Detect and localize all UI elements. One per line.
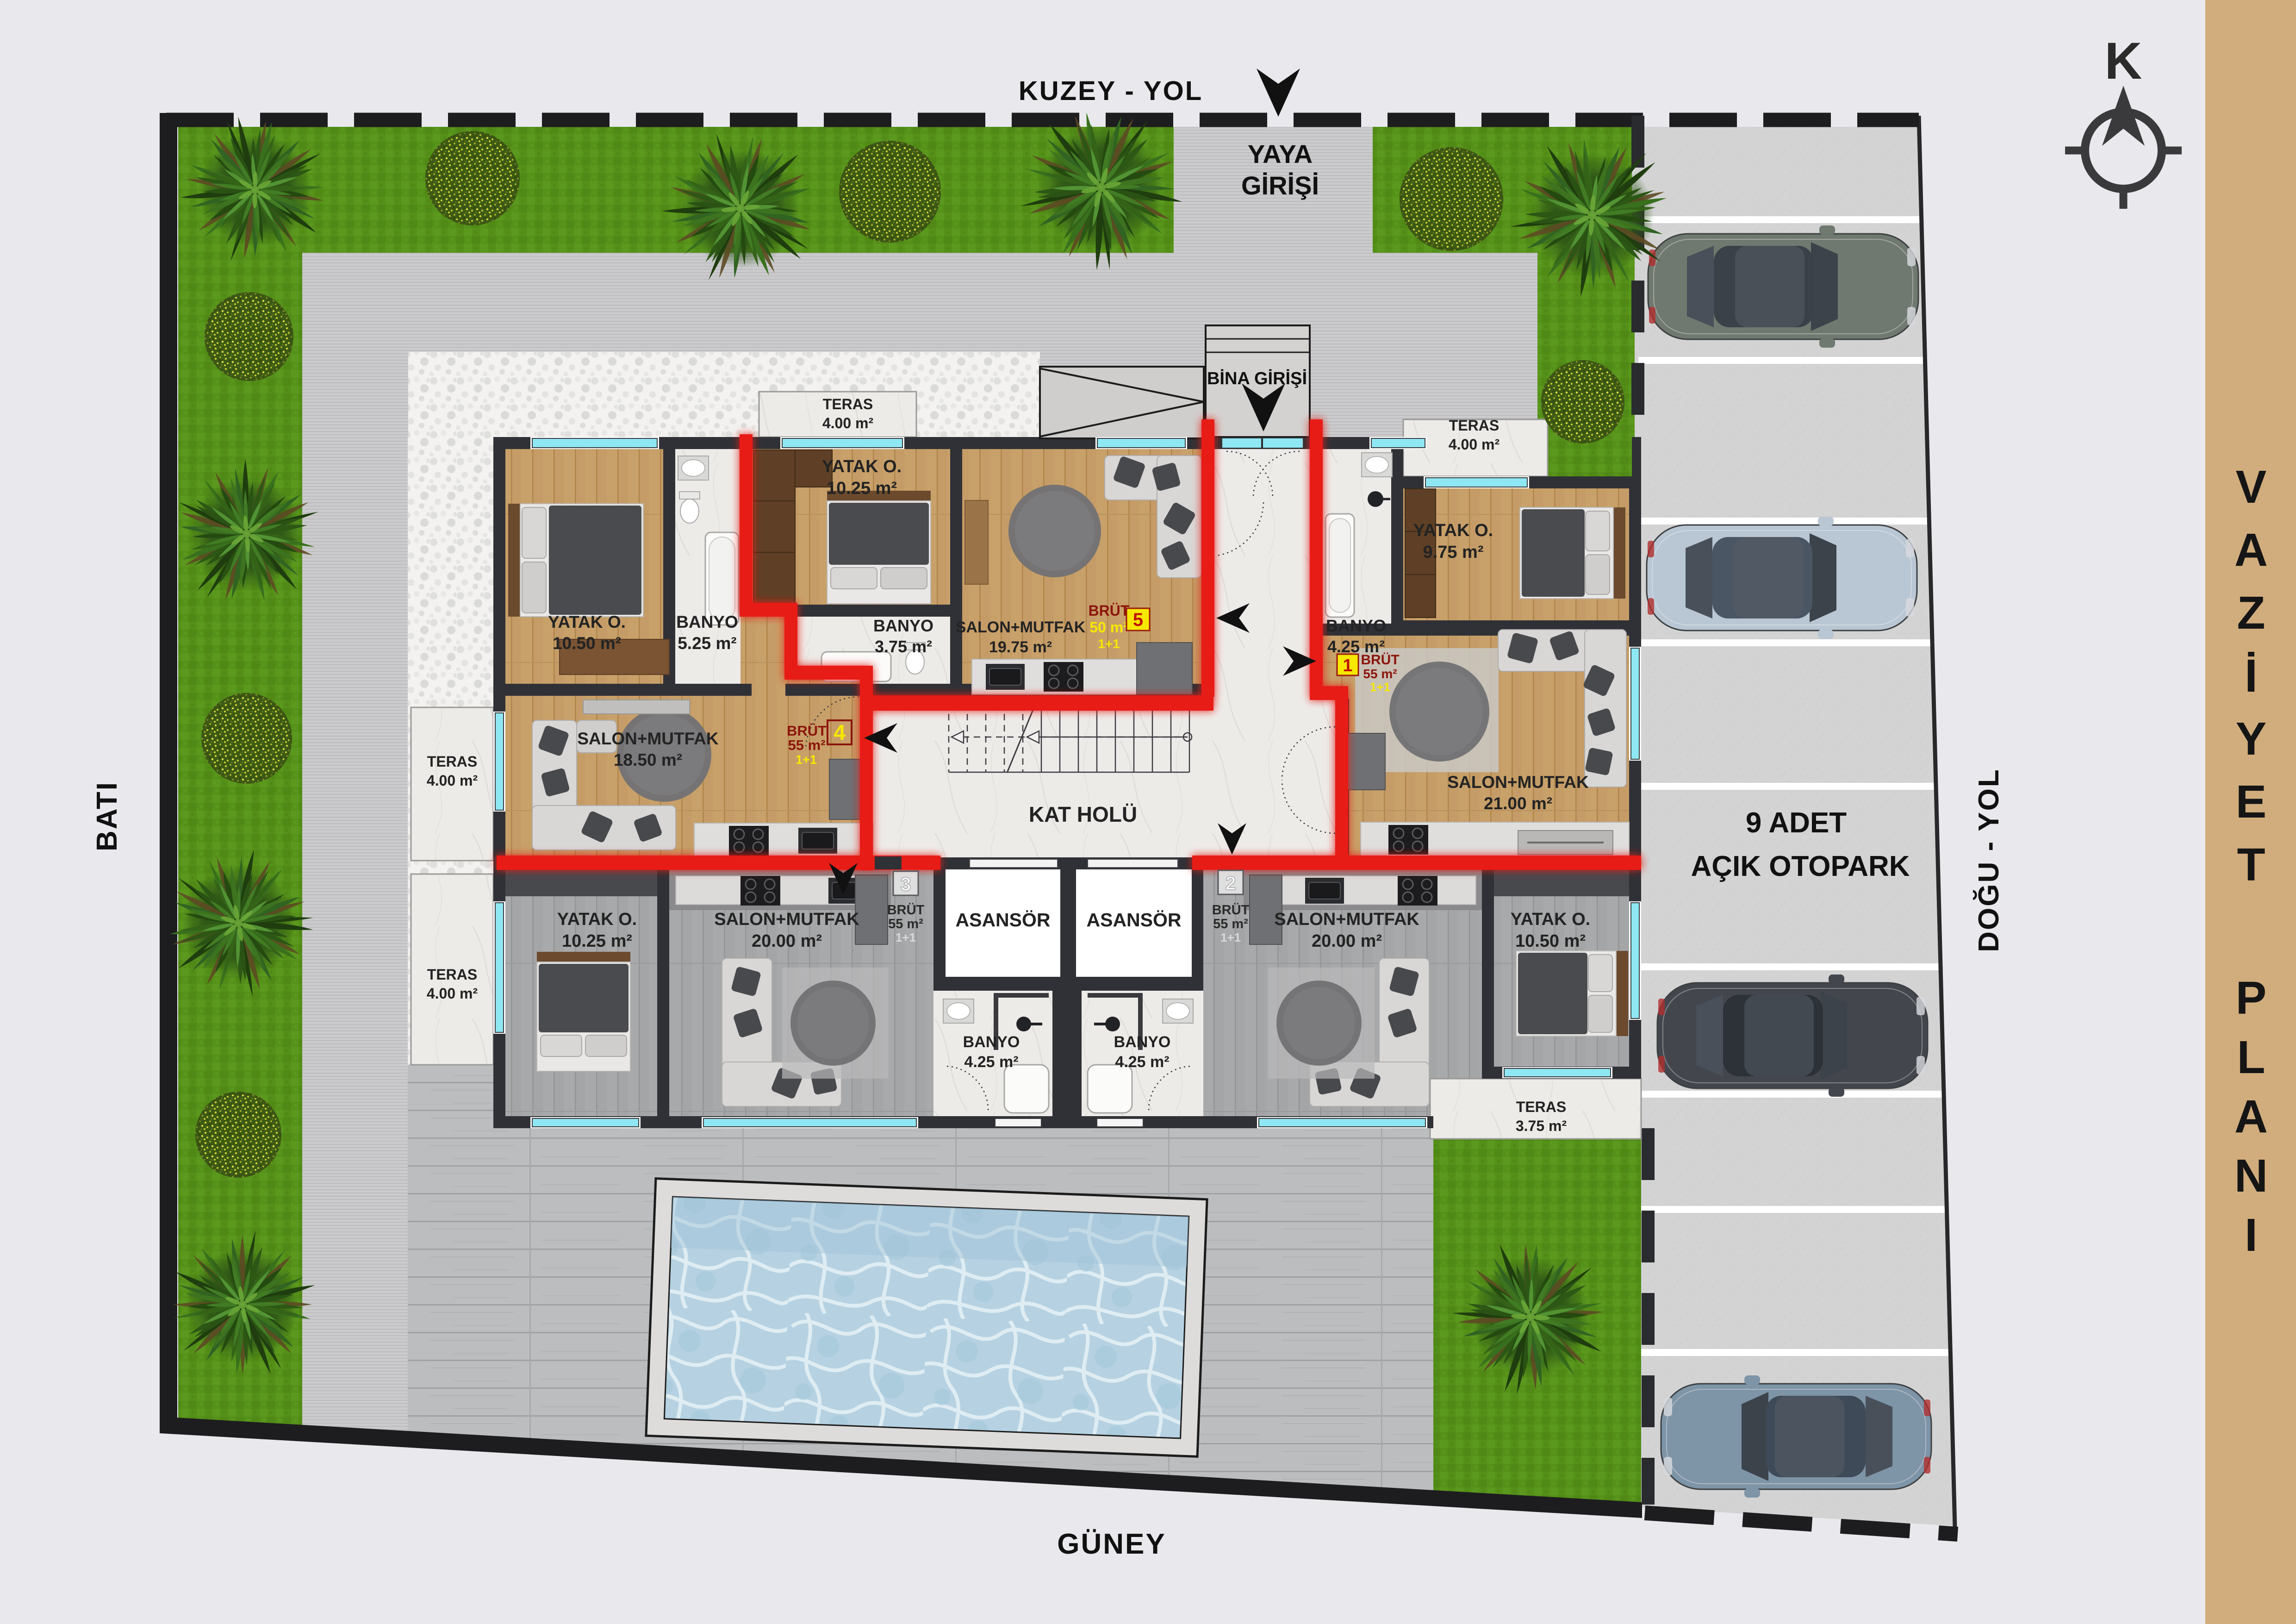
svg-text:GİRİŞİ: GİRİŞİ bbox=[1241, 171, 1319, 200]
svg-text:4.00 m²: 4.00 m² bbox=[822, 415, 873, 431]
svg-text:4.25 m²: 4.25 m² bbox=[1115, 1053, 1169, 1071]
svg-text:4.00 m²: 4.00 m² bbox=[427, 772, 478, 789]
svg-text:21.00 m²: 21.00 m² bbox=[1484, 794, 1552, 813]
svg-text:1+1: 1+1 bbox=[1098, 637, 1120, 651]
svg-text:19.75 m²: 19.75 m² bbox=[989, 638, 1052, 656]
svg-text:YAYA: YAYA bbox=[1248, 139, 1313, 169]
svg-text:K: K bbox=[2105, 32, 2142, 90]
svg-text:10.25 m²: 10.25 m² bbox=[562, 931, 632, 951]
svg-text:3.75 m²: 3.75 m² bbox=[1516, 1118, 1567, 1134]
svg-text:İ: İ bbox=[2245, 650, 2258, 702]
svg-text:A: A bbox=[2234, 524, 2268, 576]
svg-text:SALON+MUTFAK: SALON+MUTFAK bbox=[1447, 773, 1589, 792]
svg-text:1: 1 bbox=[1343, 656, 1352, 675]
svg-text:SALON+MUTFAK: SALON+MUTFAK bbox=[1274, 910, 1419, 929]
svg-text:KUZEY - YOL: KUZEY - YOL bbox=[1019, 76, 1203, 106]
svg-text:1+1: 1+1 bbox=[896, 931, 916, 944]
svg-text:10.25 m²: 10.25 m² bbox=[827, 479, 897, 498]
svg-text:Z: Z bbox=[2237, 587, 2265, 639]
svg-text:ASANSÖR: ASANSÖR bbox=[955, 909, 1050, 931]
svg-text:50 m²: 50 m² bbox=[1089, 619, 1128, 636]
svg-text:TERAS: TERAS bbox=[823, 396, 873, 412]
svg-text:BANYO: BANYO bbox=[1114, 1033, 1171, 1051]
svg-text:20.00 m²: 20.00 m² bbox=[752, 931, 822, 951]
svg-text:2: 2 bbox=[1225, 872, 1236, 894]
svg-text:5.25 m²: 5.25 m² bbox=[678, 634, 737, 653]
svg-text:4.00 m²: 4.00 m² bbox=[427, 985, 478, 1002]
svg-text:I: I bbox=[2245, 1209, 2258, 1261]
svg-text:18.50 m²: 18.50 m² bbox=[614, 750, 682, 769]
svg-text:Y: Y bbox=[2236, 713, 2267, 765]
svg-text:55 m²: 55 m² bbox=[788, 737, 826, 753]
svg-text:TERAS: TERAS bbox=[1449, 417, 1499, 434]
svg-text:L: L bbox=[2237, 1031, 2265, 1083]
svg-text:3: 3 bbox=[900, 873, 911, 895]
svg-text:3.75 m²: 3.75 m² bbox=[875, 637, 932, 656]
svg-text:BANYO: BANYO bbox=[1326, 616, 1386, 635]
svg-text:TERAS: TERAS bbox=[427, 966, 477, 983]
svg-text:BRÜT: BRÜT bbox=[1089, 602, 1130, 619]
svg-text:DOĞU - YOL: DOĞU - YOL bbox=[1973, 768, 2005, 952]
svg-text:BATI: BATI bbox=[91, 781, 123, 851]
svg-text:5: 5 bbox=[1133, 610, 1143, 630]
svg-text:YATAK O.: YATAK O. bbox=[822, 457, 902, 476]
svg-text:YATAK O.: YATAK O. bbox=[548, 612, 626, 631]
svg-text:1+1: 1+1 bbox=[1220, 931, 1241, 944]
svg-text:N: N bbox=[2234, 1150, 2268, 1202]
svg-text:9.75 m²: 9.75 m² bbox=[1423, 543, 1484, 562]
svg-text:SALON+MUTFAK: SALON+MUTFAK bbox=[714, 910, 859, 929]
svg-text:YATAK O.: YATAK O. bbox=[557, 910, 637, 929]
svg-text:BİNA GİRİŞİ: BİNA GİRİŞİ bbox=[1207, 369, 1307, 388]
svg-text:V: V bbox=[2236, 461, 2267, 513]
svg-text:55 m²: 55 m² bbox=[1213, 917, 1248, 931]
svg-text:ASANSÖR: ASANSÖR bbox=[1086, 909, 1181, 931]
svg-text:SALON+MUTFAK: SALON+MUTFAK bbox=[577, 729, 719, 748]
svg-text:4.25 m²: 4.25 m² bbox=[1327, 637, 1385, 656]
svg-text:BRÜT: BRÜT bbox=[887, 902, 925, 918]
svg-text:E: E bbox=[2236, 776, 2267, 828]
svg-text:GÜNEY: GÜNEY bbox=[1057, 1528, 1166, 1560]
svg-text:4: 4 bbox=[834, 720, 846, 744]
svg-text:BRÜT: BRÜT bbox=[787, 723, 827, 739]
svg-text:P: P bbox=[2236, 972, 2267, 1024]
svg-text:SALON+MUTFAK: SALON+MUTFAK bbox=[956, 618, 1086, 636]
svg-text:A: A bbox=[2234, 1091, 2268, 1143]
svg-text:BRÜT: BRÜT bbox=[1212, 902, 1250, 918]
svg-text:9 ADET: 9 ADET bbox=[1746, 807, 1847, 839]
svg-text:55 m²: 55 m² bbox=[1363, 667, 1397, 681]
svg-text:10.50 m²: 10.50 m² bbox=[553, 634, 621, 653]
svg-text:AÇIK OTOPARK: AÇIK OTOPARK bbox=[1691, 850, 1910, 882]
svg-text:BANYO: BANYO bbox=[873, 616, 933, 635]
svg-text:20.00 m²: 20.00 m² bbox=[1312, 931, 1382, 951]
svg-text:BANYO: BANYO bbox=[676, 612, 738, 631]
svg-text:YATAK O.: YATAK O. bbox=[1511, 910, 1590, 929]
svg-text:TERAS: TERAS bbox=[1516, 1099, 1566, 1115]
svg-text:BANYO: BANYO bbox=[963, 1033, 1020, 1051]
svg-text:10.50 m²: 10.50 m² bbox=[1515, 931, 1586, 951]
svg-text:4.25 m²: 4.25 m² bbox=[964, 1053, 1018, 1071]
svg-text:4.00 m²: 4.00 m² bbox=[1449, 436, 1500, 453]
svg-text:1+1: 1+1 bbox=[1370, 680, 1390, 694]
svg-text:T: T bbox=[2237, 839, 2265, 891]
svg-text:TERAS: TERAS bbox=[427, 753, 477, 770]
svg-text:YATAK O.: YATAK O. bbox=[1413, 521, 1493, 540]
svg-text:KAT HOLÜ: KAT HOLÜ bbox=[1029, 802, 1137, 826]
svg-text:55 m²: 55 m² bbox=[888, 917, 923, 931]
svg-text:1+1: 1+1 bbox=[796, 753, 817, 767]
